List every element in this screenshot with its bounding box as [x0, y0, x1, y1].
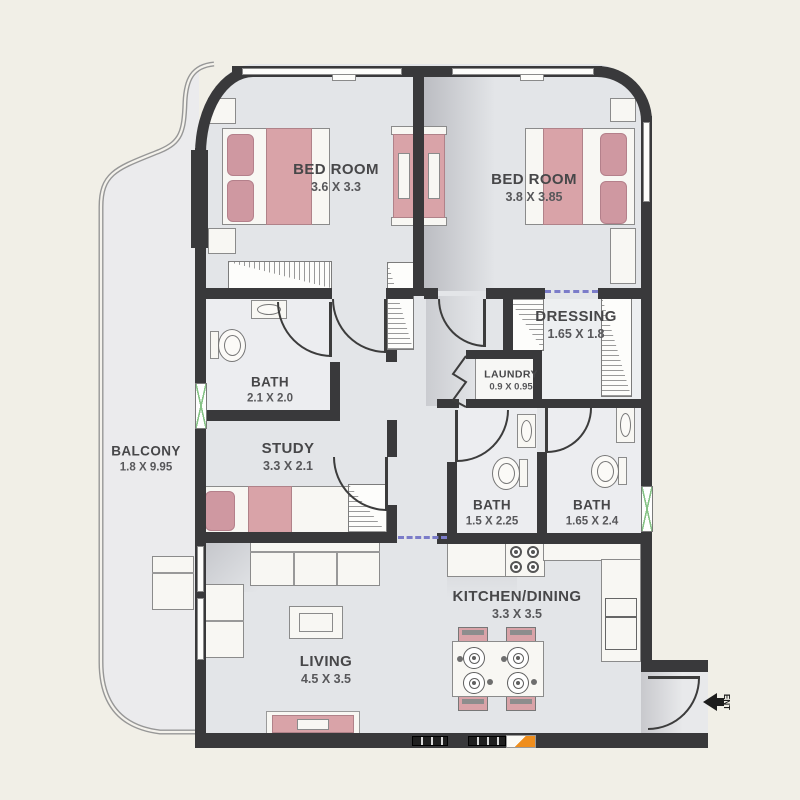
nightstand: [208, 228, 236, 254]
stove-burner: [510, 546, 522, 558]
toilet-tank: [618, 457, 627, 485]
room-label-bath-top: BATH 2.1 X 2.0: [247, 374, 293, 405]
stove-burner: [510, 561, 522, 573]
bath-mid-dims: 1.5 X 2.25: [466, 514, 518, 528]
stove: [505, 541, 545, 577]
panel-marker: [468, 736, 506, 746]
wardrobe-hatch: [228, 261, 332, 289]
window-sill: [520, 74, 544, 81]
cup: [531, 679, 537, 685]
opening-dashed: [545, 290, 598, 293]
orange-marker: [506, 735, 536, 748]
room-label-bath-right: BATH 1.65 X 2.4: [566, 497, 618, 528]
laundry-name: LAUNDRY: [484, 369, 538, 382]
wall: [447, 462, 457, 535]
kitchen-counter: [543, 541, 641, 561]
sink-basin: [620, 413, 631, 437]
door-leaf: [545, 408, 548, 453]
kitchen-dining-dims: 3.3 X 3.5: [453, 607, 582, 623]
dining-chair: [506, 696, 536, 711]
sink-basin: [521, 420, 532, 442]
bed-pillow: [600, 133, 627, 176]
lounger: [152, 556, 194, 610]
window-vent-icon: [195, 383, 207, 429]
cup: [457, 656, 463, 662]
dresser-front: [398, 153, 410, 199]
window: [242, 68, 402, 75]
wall: [195, 532, 397, 543]
room-label-study: STUDY 3.3 X 2.1: [262, 440, 315, 474]
floor-plan: ENT BED ROOM 3.6 X 3.3 BED ROOM 3.8 X 3.…: [0, 0, 800, 800]
plate: [463, 647, 485, 669]
living-name: LIVING: [300, 653, 352, 672]
wall: [386, 288, 413, 299]
door-leaf: [455, 410, 458, 462]
window: [197, 598, 204, 660]
sofa-line: [293, 552, 295, 585]
bath-top-name: BATH: [247, 374, 293, 391]
bath-top-dims: 2.1 X 2.0: [247, 391, 293, 405]
wall: [503, 288, 513, 358]
fridge-line: [606, 616, 636, 618]
bedroom-left-dims: 3.6 X 3.3: [293, 180, 379, 196]
room-label-laundry: LAUNDRY 0.9 X 0.95: [484, 369, 538, 394]
entrance-arrow-icon: [703, 693, 717, 711]
dressing-dims: 1.65 X 1.8: [535, 327, 617, 343]
panel-marker: [412, 736, 448, 746]
wall: [424, 288, 438, 299]
laundry-dims: 0.9 X 0.95: [484, 382, 538, 394]
wall: [537, 452, 547, 535]
room-label-bath-mid: BATH 1.5 X 2.25: [466, 497, 518, 528]
wall: [466, 350, 542, 359]
bed-pillow: [227, 180, 254, 222]
door-leaf: [385, 457, 388, 511]
wall: [542, 399, 641, 408]
wall: [387, 420, 397, 457]
wall: [206, 288, 332, 299]
cup: [501, 656, 507, 662]
sofa: [250, 541, 380, 586]
dresser-front: [428, 153, 440, 199]
study-name: STUDY: [262, 440, 315, 459]
room-label-living: LIVING 4.5 X 3.5: [300, 653, 352, 687]
bath-right-dims: 1.65 X 2.4: [566, 514, 618, 528]
entrance-door-leaf: [648, 676, 700, 679]
bedroom-left-name: BED ROOM: [293, 161, 379, 180]
bedroom-right-dims: 3.8 X 3.85: [491, 190, 577, 206]
wall: [641, 660, 708, 672]
dining-chair: [458, 696, 488, 711]
room-label-bedroom-left: BED ROOM 3.6 X 3.3: [293, 161, 379, 195]
bedroom-right-name: BED ROOM: [491, 171, 577, 190]
wall: [413, 70, 424, 296]
wall: [486, 288, 545, 299]
study-dims: 3.3 X 2.1: [262, 459, 315, 475]
room-label-dressing: DRESSING 1.65 X 1.8: [535, 308, 617, 342]
sofa-line: [336, 552, 338, 585]
toilet-bowl: [224, 335, 241, 356]
plate: [507, 672, 529, 694]
plate: [463, 672, 485, 694]
entrance-label: ENT: [722, 694, 731, 710]
wall: [191, 150, 208, 248]
room-label-balcony: BALCONY 1.8 X 9.95: [111, 443, 181, 474]
fridge: [605, 598, 637, 650]
wall: [466, 399, 542, 408]
bed-pillow: [600, 181, 627, 224]
window-sill: [332, 74, 356, 81]
toilet-bowl: [498, 463, 515, 484]
balcony-dims: 1.8 X 9.95: [111, 460, 181, 474]
bath-right-name: BATH: [566, 497, 618, 514]
plate: [507, 647, 529, 669]
kitchen-dining-name: KITCHEN/DINING: [453, 588, 582, 607]
kitchen-counter: [447, 541, 507, 577]
dressing-name: DRESSING: [535, 308, 617, 327]
door-leaf: [329, 302, 332, 357]
wardrobe-hatch: [387, 262, 414, 350]
wall: [437, 533, 641, 544]
sofa-line: [250, 551, 380, 553]
window-vent-icon: [641, 486, 653, 532]
daybed-blanket: [248, 486, 292, 536]
room-label-kitchen-dining: KITCHEN/DINING 3.3 X 3.5: [453, 588, 582, 622]
living-dims: 4.5 X 3.5: [300, 672, 352, 688]
daybed-pillow: [205, 491, 235, 531]
dining-chair: [506, 627, 536, 642]
dining-chair: [458, 627, 488, 642]
toilet-tank: [519, 459, 528, 487]
folding-door-icon: [448, 350, 470, 410]
wall: [386, 350, 397, 362]
wall: [195, 733, 708, 748]
tv-screen: [297, 719, 329, 730]
lounger-line: [152, 572, 194, 574]
sliding-door: [197, 546, 204, 592]
room-label-bedroom-right: BED ROOM 3.8 X 3.85: [491, 171, 577, 205]
stove-burner: [527, 546, 539, 558]
cup: [487, 679, 493, 685]
toilet-bowl: [597, 461, 614, 482]
opening-dashed: [398, 536, 447, 539]
balcony-name: BALCONY: [111, 443, 181, 460]
coffee-table-inner: [299, 613, 333, 632]
door-leaf: [384, 299, 387, 353]
wall: [598, 288, 641, 299]
window: [643, 122, 650, 202]
wall: [195, 410, 340, 421]
door-leaf: [483, 299, 486, 347]
bath-mid-name: BATH: [466, 497, 518, 514]
shelf: [610, 228, 636, 284]
stove-burner: [527, 561, 539, 573]
